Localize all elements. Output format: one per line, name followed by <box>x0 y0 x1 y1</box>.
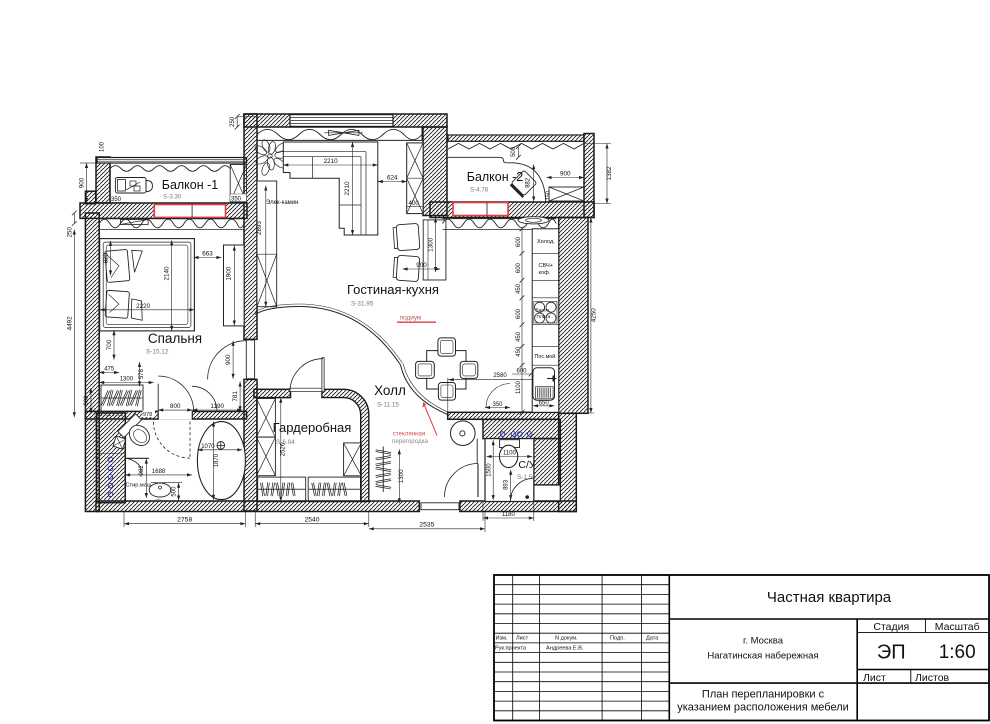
svg-text:S-4.78: S-4.78 <box>470 187 489 194</box>
svg-text:S-1.56: S-1.56 <box>517 474 536 481</box>
svg-text:2140: 2140 <box>163 266 170 281</box>
svg-text:Андреева Е.В.: Андреева Е.В. <box>546 645 584 651</box>
svg-text:Гардеробная: Гардеробная <box>273 420 352 435</box>
svg-text:ЭП: ЭП <box>877 642 906 664</box>
svg-text:указанием расположения мебели: указанием расположения мебели <box>677 702 849 714</box>
svg-text:1300: 1300 <box>120 377 134 383</box>
svg-text:450: 450 <box>516 331 522 342</box>
svg-text:350: 350 <box>231 197 242 203</box>
svg-text:Пос.мой.: Пос.мой. <box>535 353 557 360</box>
svg-text:882: 882 <box>526 177 532 188</box>
svg-text:900: 900 <box>560 171 571 178</box>
svg-text:подиум: подиум <box>400 315 422 322</box>
svg-text:N докум.: N докум. <box>555 636 578 642</box>
svg-text:600: 600 <box>84 395 90 406</box>
svg-text:Изм.: Изм. <box>496 636 508 642</box>
svg-text:650: 650 <box>539 400 550 406</box>
svg-text:900: 900 <box>225 354 232 365</box>
svg-text:Нагатинская набережная: Нагатинская набережная <box>707 651 818 662</box>
svg-text:250: 250 <box>230 116 236 127</box>
svg-text:600: 600 <box>516 262 522 273</box>
svg-text:перегородка: перегородка <box>392 438 428 445</box>
svg-text:обо: обо <box>155 498 161 502</box>
svg-text:Балкон -1: Балкон -1 <box>162 178 219 192</box>
svg-text:S-15.12: S-15.12 <box>146 349 169 356</box>
svg-text:2535: 2535 <box>419 522 434 529</box>
svg-text:600: 600 <box>516 236 522 247</box>
svg-text:823: 823 <box>103 252 110 263</box>
svg-text:4492: 4492 <box>66 316 73 331</box>
svg-text:2580: 2580 <box>493 373 507 379</box>
svg-text:стеклянная: стеклянная <box>393 431 426 438</box>
svg-text:2220: 2220 <box>136 303 151 310</box>
svg-text:Масштаб: Масштаб <box>935 621 980 633</box>
svg-text:1870: 1870 <box>214 453 220 467</box>
svg-text:Холл: Холл <box>374 383 406 398</box>
svg-text:4250: 4250 <box>591 308 598 323</box>
svg-text:коф.: коф. <box>539 270 551 276</box>
svg-text:1070: 1070 <box>201 444 215 450</box>
svg-text:Подп.: Подп. <box>610 636 625 642</box>
svg-text:1:60: 1:60 <box>939 642 976 663</box>
svg-text:1100: 1100 <box>516 380 522 394</box>
svg-text:2893: 2893 <box>256 221 263 236</box>
svg-text:475: 475 <box>104 367 115 373</box>
svg-text:2758: 2758 <box>177 517 192 524</box>
svg-text:350: 350 <box>111 197 122 203</box>
svg-text:Лист: Лист <box>516 636 529 642</box>
svg-text:900: 900 <box>416 262 427 269</box>
svg-text:Гостиная-кухня: Гостиная-кухня <box>347 282 439 297</box>
svg-text:893: 893 <box>504 479 510 490</box>
svg-text:1300: 1300 <box>398 469 405 484</box>
svg-text:700: 700 <box>106 339 113 350</box>
svg-text:2526: 2526 <box>280 442 286 456</box>
svg-text:S-3.30: S-3.30 <box>163 194 182 201</box>
svg-text:150: 150 <box>546 191 552 200</box>
svg-text:450: 450 <box>516 346 522 357</box>
svg-text:578: 578 <box>139 368 145 379</box>
svg-text:978: 978 <box>143 412 152 418</box>
svg-text:100: 100 <box>100 141 106 152</box>
svg-text:1688: 1688 <box>152 469 166 475</box>
svg-text:Элек-камин: Элек-камин <box>266 200 298 206</box>
svg-text:Балкон -2: Балкон -2 <box>467 170 524 184</box>
svg-text:Дата: Дата <box>646 636 659 642</box>
svg-text:Рук.проекта: Рук.проекта <box>495 645 527 651</box>
svg-text:450: 450 <box>516 283 522 294</box>
svg-text:350: 350 <box>492 402 503 408</box>
svg-text:600: 600 <box>516 369 527 375</box>
svg-text:982: 982 <box>139 465 145 476</box>
svg-text:Листов: Листов <box>915 672 950 684</box>
svg-text:600: 600 <box>516 308 522 319</box>
svg-text:800: 800 <box>170 403 181 410</box>
svg-text:Стадия: Стадия <box>873 621 909 633</box>
svg-text:Частная квартира: Частная квартира <box>767 589 892 606</box>
svg-text:1382: 1382 <box>606 166 613 181</box>
svg-text:СВЧ+: СВЧ+ <box>539 263 554 269</box>
svg-text:2210: 2210 <box>324 158 339 165</box>
svg-text:1500: 1500 <box>486 463 492 477</box>
svg-text:Стир.маш: Стир.маш <box>126 483 152 489</box>
svg-text:663: 663 <box>202 251 213 258</box>
svg-text:900: 900 <box>79 177 86 188</box>
svg-text:1900: 1900 <box>225 266 232 281</box>
svg-text:400: 400 <box>409 200 420 207</box>
svg-text:250: 250 <box>66 226 73 237</box>
svg-text:624: 624 <box>387 175 398 182</box>
svg-text:1190: 1190 <box>210 403 224 410</box>
svg-text:S-31.95: S-31.95 <box>351 301 374 308</box>
svg-text:S-11.15: S-11.15 <box>377 402 399 409</box>
svg-text:781: 781 <box>232 391 239 402</box>
svg-text:500: 500 <box>171 486 177 497</box>
svg-text:Холод.: Холод. <box>537 239 555 245</box>
svg-text:1180: 1180 <box>502 512 516 518</box>
svg-text:План перепланировки с: План перепланировки с <box>702 689 825 701</box>
svg-text:Спальня: Спальня <box>148 331 202 346</box>
svg-text:500: 500 <box>511 146 517 157</box>
svg-text:2210: 2210 <box>344 181 351 196</box>
svg-text:Вароч.: Вароч. <box>536 308 551 314</box>
svg-text:С/У: С/У <box>518 459 536 471</box>
svg-text:2540: 2540 <box>304 517 319 524</box>
svg-text:1300: 1300 <box>427 237 434 252</box>
svg-text:1100: 1100 <box>503 451 517 457</box>
svg-text:г. Москва: г. Москва <box>743 636 784 647</box>
svg-text:Лист: Лист <box>863 672 886 684</box>
svg-text:Плита: Плита <box>537 314 551 320</box>
